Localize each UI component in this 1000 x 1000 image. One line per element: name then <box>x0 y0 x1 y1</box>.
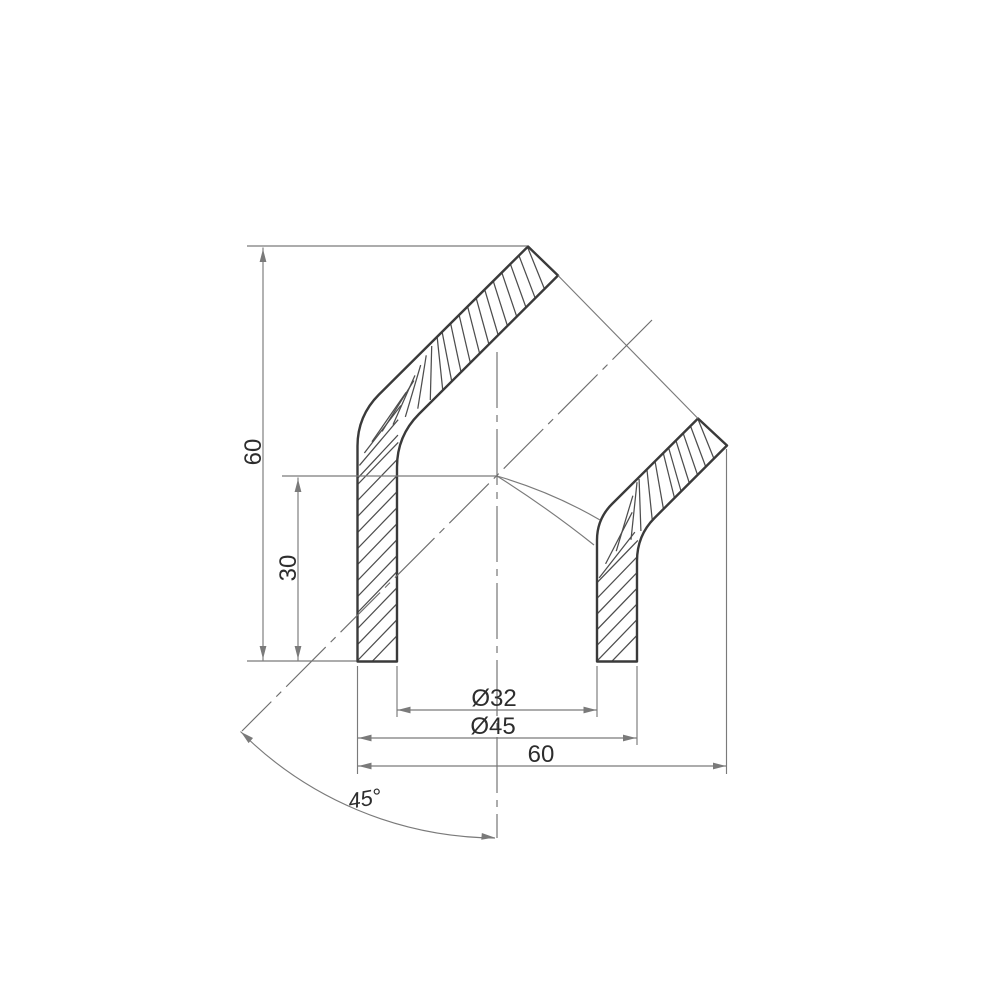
dimension-arrow <box>295 479 302 492</box>
bore-silhouette-upper <box>497 476 600 520</box>
dimension-arrow <box>623 735 636 742</box>
drawing-canvas: 60 30 Ø32 Ø45 60 45° <box>0 0 1000 1000</box>
dimension-arrow <box>295 646 302 659</box>
elbow-body <box>357 244 727 678</box>
dim-label-dia-45: Ø45 <box>470 713 515 740</box>
centerlines <box>242 320 652 838</box>
dim-label-dia-32: Ø32 <box>471 685 516 712</box>
dimension-arrow <box>584 707 597 714</box>
dim-label-width-60: 60 <box>528 741 555 768</box>
dim-label-height-60: 60 <box>240 439 267 466</box>
socket-opening-edge <box>558 276 698 419</box>
technical-drawing: 60 30 Ø32 Ø45 60 45° <box>0 0 1000 1000</box>
dimension-arrow <box>359 763 372 770</box>
dimension-arrow <box>359 735 372 742</box>
dimension-arrow <box>260 249 267 262</box>
dimension-arrow <box>260 646 267 659</box>
bore-silhouette-lower <box>497 476 594 545</box>
dimension-arrow <box>713 763 726 770</box>
dim-label-height-30: 30 <box>275 555 302 582</box>
dimension-arrow <box>398 707 411 714</box>
dim-label-angle-45: 45° <box>346 783 383 813</box>
dimension-arrow <box>481 833 494 840</box>
